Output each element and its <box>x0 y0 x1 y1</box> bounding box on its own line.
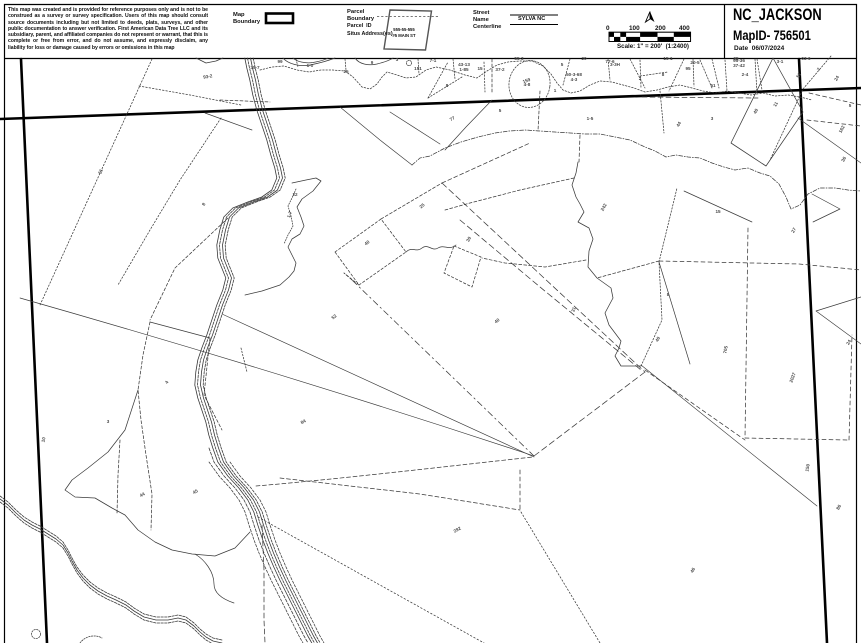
svg-text:31: 31 <box>570 306 577 313</box>
svg-text:4-3: 4-3 <box>571 77 578 82</box>
svg-text:51: 51 <box>710 83 716 88</box>
svg-text:8: 8 <box>201 202 207 207</box>
svg-text:40: 40 <box>752 107 759 114</box>
svg-text:44: 44 <box>139 491 146 498</box>
svg-text:52: 52 <box>330 313 337 320</box>
svg-text:99: 99 <box>277 59 283 64</box>
svg-text:51: 51 <box>795 71 802 78</box>
svg-text:37-2: 37-2 <box>495 67 505 72</box>
svg-text:2: 2 <box>639 76 642 81</box>
svg-text:242: 242 <box>600 202 608 212</box>
svg-text:7-1: 7-1 <box>430 58 437 63</box>
svg-text:1-85: 1-85 <box>459 67 469 72</box>
svg-text:1-5: 1-5 <box>587 116 594 121</box>
svg-text:11: 11 <box>772 101 779 108</box>
svg-text:37-42: 37-42 <box>733 63 745 68</box>
svg-text:77: 77 <box>449 115 456 122</box>
svg-text:8: 8 <box>667 292 670 297</box>
svg-text:3-1: 3-1 <box>777 59 784 64</box>
svg-text:1-0: 1-0 <box>307 63 314 68</box>
svg-text:27: 27 <box>790 226 797 233</box>
svg-text:86: 86 <box>835 503 842 510</box>
svg-text:20-5: 20-5 <box>690 60 700 65</box>
svg-text:2-4: 2-4 <box>742 72 749 77</box>
svg-text:40: 40 <box>493 317 500 324</box>
svg-text:15: 15 <box>715 209 721 214</box>
svg-text:46: 46 <box>689 566 696 573</box>
svg-text:30: 30 <box>465 235 472 242</box>
svg-text:25: 25 <box>343 69 349 74</box>
svg-text:5: 5 <box>561 62 564 67</box>
svg-text:24: 24 <box>845 338 852 345</box>
svg-text:15-1: 15-1 <box>663 56 673 61</box>
svg-text:3: 3 <box>107 419 110 424</box>
svg-text:36: 36 <box>840 155 847 162</box>
svg-text:84: 84 <box>300 418 307 425</box>
svg-text:151: 151 <box>414 66 422 71</box>
svg-text:1: 1 <box>554 88 557 93</box>
svg-text:5: 5 <box>499 108 502 113</box>
svg-text:8: 8 <box>446 83 449 88</box>
svg-text:3: 3 <box>396 57 399 62</box>
svg-text:44: 44 <box>675 120 682 127</box>
svg-text:2027: 2027 <box>788 371 796 383</box>
svg-text:3: 3 <box>711 116 714 121</box>
svg-text:35-7: 35-7 <box>250 65 260 70</box>
svg-text:45: 45 <box>192 488 199 495</box>
svg-text:24: 24 <box>833 74 840 81</box>
svg-text:03-6: 03-6 <box>801 56 811 61</box>
svg-text:3-3H: 3-3H <box>610 62 621 67</box>
svg-text:292: 292 <box>453 525 463 533</box>
svg-text:8: 8 <box>662 72 665 77</box>
svg-text:40: 40 <box>363 239 370 246</box>
svg-text:15: 15 <box>477 66 483 71</box>
svg-text:5: 5 <box>849 103 852 108</box>
svg-text:95: 95 <box>685 66 691 71</box>
svg-text:40: 40 <box>654 335 661 342</box>
svg-text:51: 51 <box>97 168 104 175</box>
svg-text:55-3: 55-3 <box>514 56 524 61</box>
svg-text:20: 20 <box>581 56 587 61</box>
svg-text:4: 4 <box>164 380 170 385</box>
svg-text:7: 7 <box>816 67 822 72</box>
svg-text:705: 705 <box>722 345 728 354</box>
svg-text:22: 22 <box>292 192 298 197</box>
svg-text:4-8: 4-8 <box>524 82 531 87</box>
svg-text:162: 162 <box>838 124 846 134</box>
svg-text:25: 25 <box>418 202 425 209</box>
svg-text:10: 10 <box>41 436 47 442</box>
svg-text:9: 9 <box>371 60 374 65</box>
svg-text:150: 150 <box>804 463 810 472</box>
svg-text:1-7: 1-7 <box>286 210 293 218</box>
svg-text:93-2: 93-2 <box>203 73 213 80</box>
